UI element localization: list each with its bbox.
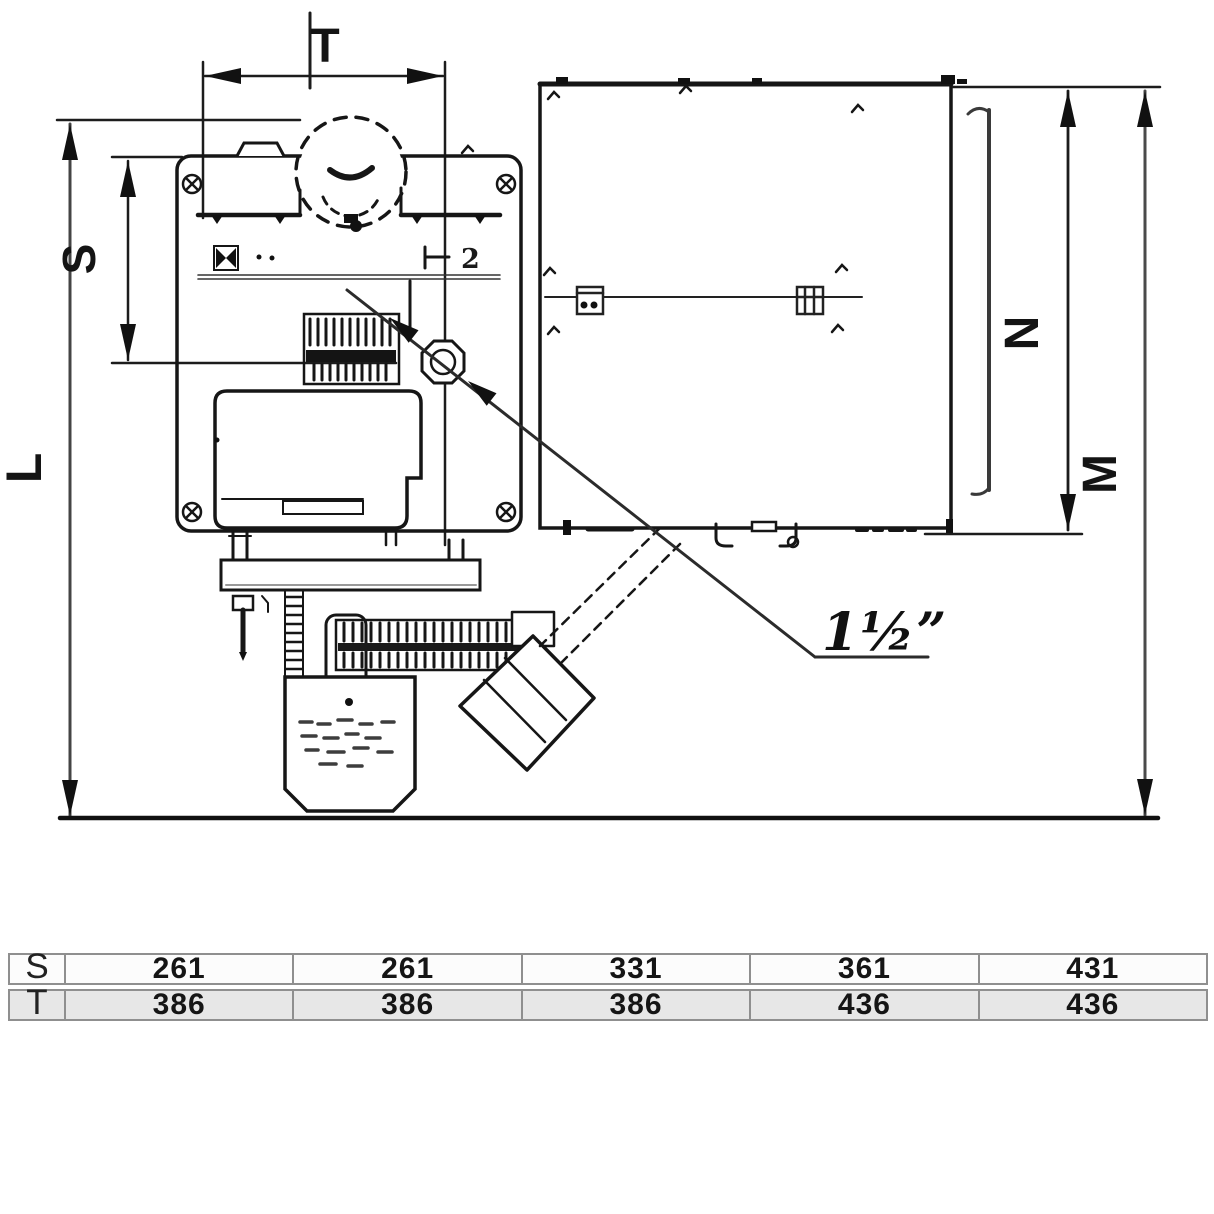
inner-panel-line [968, 108, 989, 494]
arrow-down [1137, 779, 1153, 815]
burner-dimension-diagram: T L S [0, 0, 1214, 940]
table-cell: 436 [978, 991, 1206, 1019]
table-cell: 386 [292, 991, 520, 1019]
arrow-right [407, 68, 443, 84]
arrow-up [1137, 91, 1153, 127]
table-row-T: T 386 386 386 436 436 [8, 989, 1208, 1021]
table-row-header: S [10, 955, 66, 983]
front-view [177, 117, 680, 811]
arrow-down [120, 324, 136, 360]
table-cell: 386 [521, 991, 749, 1019]
table-cell: 261 [66, 955, 292, 983]
turnbuckle-left [577, 287, 603, 314]
bottom-edge-details [563, 519, 953, 547]
hidden-pipe-line [562, 544, 680, 662]
arrow-down [1060, 494, 1076, 530]
dim-label-M: M [1074, 454, 1127, 494]
arrow-up [120, 161, 136, 197]
control-box [215, 391, 422, 528]
symbol-row [214, 246, 449, 270]
dim-label-T: T [310, 20, 339, 73]
arrow-down [62, 780, 78, 816]
top-bump [237, 143, 284, 156]
table-cell: 436 [749, 991, 977, 1019]
thread-hatch-bottom [314, 364, 386, 380]
pipe-thread-top [344, 623, 524, 641]
mount-bolt [233, 596, 268, 661]
connection-size-label: 1½” [822, 602, 948, 663]
pump-body [285, 677, 415, 811]
hidden-pipe-line [540, 528, 660, 646]
side-view [462, 75, 989, 547]
flange-plate [221, 530, 480, 590]
turnbuckle-right [797, 287, 823, 314]
technical-drawing-page: T L S [0, 0, 1214, 1214]
table-cell: 386 [66, 991, 292, 1019]
table-cell: 431 [978, 955, 1206, 983]
table-row-header: T [10, 991, 66, 1019]
dimension-M [1137, 91, 1153, 815]
table-cell: 361 [749, 955, 977, 983]
pipe-thread-bottom [344, 653, 515, 667]
housing-mark-2: 2 [461, 244, 480, 275]
table-row-S: S 261 261 331 361 431 [8, 953, 1208, 985]
table-cell: 331 [521, 955, 749, 983]
dim-label-L: L [0, 453, 52, 484]
leader-arrow [390, 318, 419, 343]
dim-label-S: S [53, 244, 105, 275]
midline-rod [545, 287, 862, 314]
arrow-left [205, 68, 241, 84]
dimension-table: S 261 261 331 361 431 T 386 386 386 436 … [8, 953, 1208, 1025]
thread-hatch-top [310, 319, 390, 345]
dim-label-N: N [996, 316, 1049, 351]
table-cell: 261 [292, 955, 520, 983]
arrow-up [1060, 91, 1076, 127]
arrow-up [62, 124, 78, 160]
